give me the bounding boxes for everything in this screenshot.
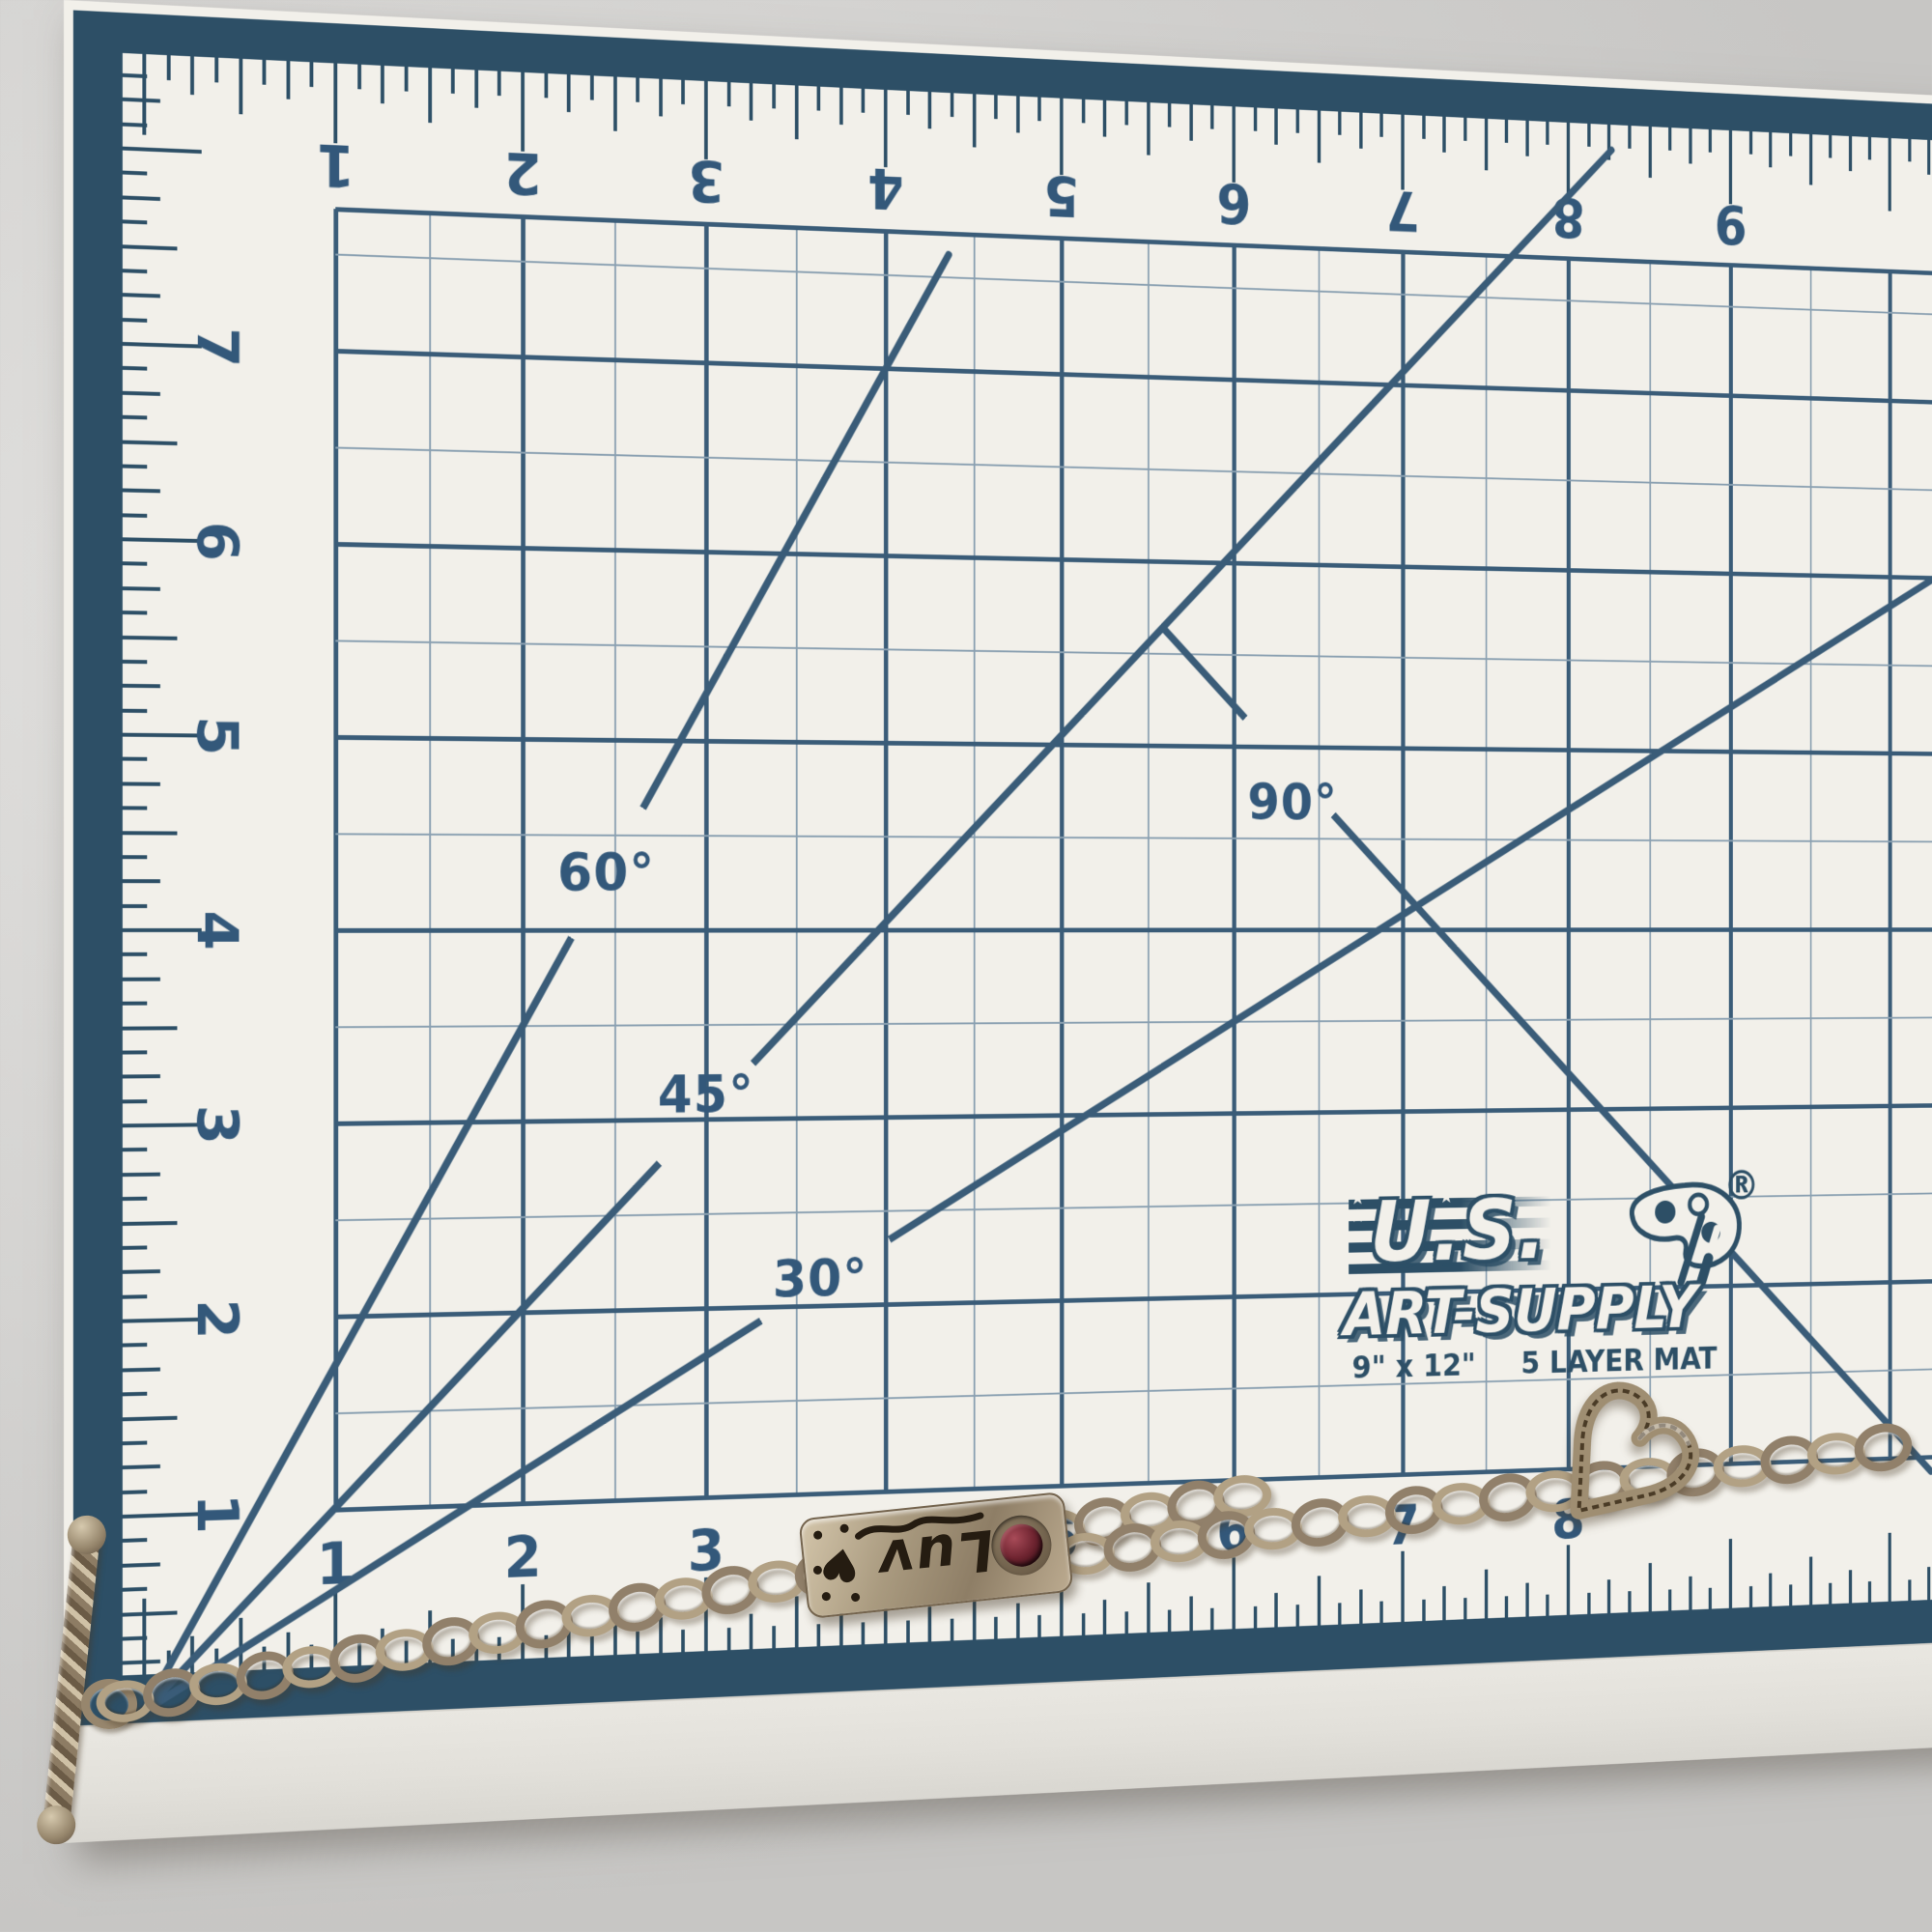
ruler-tick-top [214, 58, 218, 83]
ruler-number-left: 7 [188, 326, 244, 367]
ruler-tick-bottom [1147, 1582, 1150, 1633]
ruler-tick-left [123, 244, 178, 250]
ruler-tick-left [123, 147, 202, 154]
grid-hline [335, 541, 1932, 585]
ruler-tick-top [1254, 107, 1257, 130]
ruler-number-top: 9 [1714, 196, 1747, 250]
ruler-tick-top [286, 61, 290, 99]
ruler-tick-top [951, 93, 954, 117]
ruler-tick-left [123, 391, 160, 396]
ruler-tick-top [862, 89, 866, 113]
ruler-number-left: 5 [188, 716, 244, 756]
ruler-tick-bottom [659, 1617, 663, 1653]
ruler-tick-bottom [567, 1621, 571, 1657]
ruler-tick-top [1809, 134, 1812, 185]
ruler-tick-top [451, 69, 455, 94]
ruler-tick-left [123, 977, 160, 980]
ruler-tick-bottom [286, 1633, 290, 1669]
ruler-tick-bottom [1729, 1539, 1732, 1608]
ruler-tick-bottom [928, 1606, 932, 1641]
ruler-tick-bottom [1709, 1588, 1712, 1609]
ruler-tick-bottom [1668, 1589, 1671, 1610]
ruler-tick-top [636, 78, 639, 102]
ruler-tick-top [357, 65, 361, 90]
ruler-tick-top [1189, 104, 1192, 141]
mat-layer-label: 5 LAYER MAT [1520, 1341, 1717, 1381]
ruler-tick-bottom [682, 1630, 686, 1652]
ruler-tick-bottom [1607, 1579, 1610, 1613]
ruler-tick-top [1547, 122, 1549, 145]
ruler-number-bottom: 6 [1216, 1505, 1251, 1560]
ruler-number-top: 2 [504, 143, 542, 201]
ruler-tick-top [1587, 124, 1590, 147]
ruler-tick-top [659, 79, 663, 117]
ruler-tick-top [190, 56, 194, 95]
ruler-tick-left [123, 1464, 160, 1469]
ruler-tick-bottom [1849, 1570, 1852, 1603]
ruler-tick-left [123, 513, 147, 518]
ruler-tick-bottom [1401, 1551, 1404, 1622]
ruler-number-top: 4 [867, 159, 903, 216]
ruler-tick-bottom [862, 1622, 866, 1644]
ruler-tick-left [123, 1172, 160, 1177]
ruler-number-top: 7 [1385, 182, 1419, 237]
ruler-tick-top [1769, 132, 1772, 167]
ruler-number-bottom: 7 [1385, 1498, 1419, 1553]
ruler-tick-top [772, 84, 776, 108]
ruler-tick-top [567, 74, 571, 112]
ruler-number-left: 3 [188, 1104, 244, 1145]
ruler-tick-bottom [994, 1617, 998, 1639]
ruler-tick-top [428, 68, 432, 123]
ruler-tick-bottom [474, 1625, 478, 1661]
ruler-tick-left [123, 586, 160, 591]
ruler-tick-top [1338, 112, 1341, 135]
ruler-tick-left [123, 122, 147, 127]
ruler-tick-left [123, 219, 147, 224]
ruler-tick-left [123, 489, 160, 494]
ruler-tick-left [123, 195, 160, 201]
ruler-tick-bottom [1317, 1576, 1320, 1625]
ruler-tick-left [123, 831, 178, 835]
ruler-tick-bottom [1908, 1579, 1911, 1601]
ruler-tick-top [682, 80, 686, 104]
ruler-tick-left [123, 1148, 147, 1151]
ruler-number-bottom: 2 [504, 1529, 542, 1587]
ruler-tick-bottom [1037, 1615, 1041, 1637]
ruler-tick-left [123, 1660, 160, 1665]
ruler-tick-top [972, 94, 976, 147]
ruler-tick-left [123, 1099, 147, 1103]
ruler-tick-top [590, 75, 594, 99]
ruler-tick-top [166, 55, 170, 80]
ruler-tick-left [123, 1343, 147, 1348]
ruler-tick-bottom [405, 1641, 409, 1664]
logo-brand-artsupply: ART-SUPPLY [1344, 1273, 1697, 1350]
ruler-tick-top [750, 83, 753, 121]
ruler-tick-top [1168, 103, 1171, 128]
ruler-tick-bottom [613, 1604, 617, 1655]
ruler-tick-bottom [1809, 1557, 1812, 1605]
ruler-tick-bottom [1484, 1570, 1487, 1619]
ruler-tick-left [123, 73, 147, 78]
ruler-tick-bottom [884, 1571, 888, 1644]
ruler-tick-bottom [1103, 1600, 1106, 1634]
ruler-number-bottom: 3 [688, 1522, 724, 1579]
ruler-tick-bottom [1210, 1608, 1213, 1631]
grid-hline [335, 1445, 1932, 1512]
ruler-tick-bottom [310, 1644, 314, 1667]
ruler-number-bottom: 4 [867, 1517, 903, 1574]
ruler-tick-bottom [1749, 1586, 1752, 1607]
ruler-tick-bottom [497, 1637, 501, 1661]
ruler-tick-bottom [1232, 1557, 1235, 1629]
ruler-tick-left [123, 1367, 160, 1372]
ruler-tick-top [839, 88, 843, 125]
ruler-tick-bottom [1567, 1545, 1570, 1615]
ruler-tick-bottom [1547, 1595, 1549, 1616]
ruler-tick-bottom [1525, 1583, 1528, 1617]
ruler-tick-left [123, 366, 147, 371]
ruler-tick-top [1908, 139, 1911, 161]
ruler-tick-bottom [1769, 1574, 1772, 1607]
ruler-tick-top [1422, 116, 1425, 139]
ruler-tick-bottom [428, 1610, 432, 1662]
ruler-tick-bottom [772, 1626, 776, 1648]
ruler-tick-top [906, 91, 910, 115]
ruler-number-top: 1 [316, 135, 355, 194]
ruler-tick-bottom [1648, 1563, 1651, 1611]
ruler-tick-top [1484, 119, 1487, 171]
ruler-tick-left [123, 708, 147, 712]
ruler-number-left: 1 [188, 1492, 244, 1534]
angle-label-45: 45° [658, 1068, 754, 1122]
ruler-tick-left [123, 1490, 147, 1494]
grid-top-line [335, 207, 1932, 286]
ruler-tick-top [1124, 101, 1127, 126]
ruler-tick-top [1103, 100, 1106, 137]
ruler-tick-bottom [1124, 1611, 1127, 1634]
ruler-number-left: 6 [188, 521, 244, 562]
ruler-tick-bottom [750, 1614, 753, 1650]
ruler-number-left: 4 [188, 910, 244, 950]
ruler-tick-top [1889, 138, 1891, 212]
ruler-tick-top [1689, 128, 1691, 164]
ruler-tick-bottom [1060, 1564, 1064, 1636]
ruler-tick-bottom [1168, 1609, 1171, 1632]
ruler-tick-left [123, 807, 147, 810]
ruler-tick-bottom [263, 1646, 267, 1669]
ruler-tick-left [123, 1050, 147, 1054]
ruler-tick-left [123, 1587, 147, 1592]
ruler-tick-bottom [906, 1620, 910, 1642]
ruler-tick-top [310, 62, 314, 87]
ruler-tick-bottom [704, 1577, 708, 1651]
ruler-tick-top [381, 66, 384, 103]
ruler-tick-top [928, 92, 932, 128]
ruler-tick-top [994, 95, 998, 119]
us-art-supply-logo: ★ ★ ★ ★ ★ U.S. ® ART-SUPPLY 9" x 12" 5 L… [1344, 1178, 1748, 1381]
ruler-tick-bottom [1628, 1591, 1631, 1612]
ruler-number-left: 2 [188, 1298, 244, 1340]
ruler-tick-left [123, 171, 147, 176]
ruler-tick-top [1443, 117, 1446, 153]
ruler-tick-bottom [726, 1628, 730, 1650]
ruler-tick-bottom [972, 1589, 976, 1639]
ray-30deg [142, 400, 1932, 1715]
ruler-tick-top [497, 71, 501, 97]
ruler-tick-top [1749, 131, 1752, 155]
ruler-tick-left [123, 293, 160, 298]
ruler-tick-left [123, 635, 178, 639]
ruler-tick-left [123, 879, 160, 883]
ruler-tick-bottom [590, 1634, 594, 1656]
mat-border-left [73, 10, 123, 1725]
ruler-tick-left [123, 415, 147, 420]
ruler-tick-top [544, 73, 548, 98]
ruler-tick-left [123, 1026, 178, 1030]
ruler-tick-top [1927, 140, 1930, 175]
ruler-tick-bottom [1868, 1581, 1871, 1603]
ruler-tick-bottom [1254, 1606, 1257, 1629]
ruler-tick-left [123, 98, 160, 103]
ruler-tick-top [794, 85, 798, 139]
ruler-tick-bottom [1016, 1604, 1020, 1638]
ruler-tick-bottom [1927, 1567, 1930, 1600]
ruler-number-top: 3 [688, 151, 724, 208]
ruler-number-top: 5 [1043, 167, 1079, 223]
ruler-tick-bottom [521, 1584, 525, 1659]
angle-label-30: 30° [773, 1252, 867, 1306]
ruler-tick-left [123, 562, 147, 566]
ruler-tick-left [123, 1074, 160, 1078]
ruler-tick-top [1037, 98, 1041, 122]
ruler-tick-left [123, 1562, 160, 1567]
grid-hline [335, 734, 1932, 758]
ruler-tick-bottom [817, 1624, 821, 1646]
ruler-tick-left [123, 1197, 147, 1201]
ruler-tick-bottom [357, 1643, 361, 1666]
ruler-tick-top [613, 76, 617, 130]
ruler-tick-left [123, 904, 147, 908]
ruler-tick-bottom [1829, 1583, 1832, 1605]
ruler-tick-top [1648, 127, 1651, 178]
ruler-tick-bottom [333, 1591, 337, 1666]
ruler-tick-left [123, 952, 147, 956]
ruler-tick-left [123, 269, 147, 273]
ruler-tick-bottom [636, 1632, 639, 1654]
angle-label-60: 60° [557, 846, 655, 899]
ruler-tick-top [1359, 113, 1362, 149]
ruler-tick-top [1829, 135, 1832, 158]
ruler-tick-bottom [951, 1619, 954, 1641]
ruler-tick-top [1709, 129, 1712, 153]
ruler-tick-left [123, 318, 147, 323]
ruler-tick-bottom [1443, 1586, 1446, 1620]
ruler-tick-top [1147, 102, 1150, 156]
mat-size-label: 9" x 12" [1352, 1348, 1476, 1386]
ruler-tick-left [123, 757, 147, 761]
ruler-tick-top [263, 60, 267, 85]
ruler-tick-bottom [1189, 1596, 1192, 1631]
ruler-tick-top [1016, 96, 1020, 132]
ruler-tick-top [1668, 128, 1671, 151]
registered-mark: ® [1723, 1161, 1759, 1209]
ruler-tick-bottom [1359, 1589, 1362, 1623]
ruler-tick-left [123, 611, 147, 614]
ruler-tick-bottom [1380, 1602, 1383, 1623]
ruler-tick-top [1317, 110, 1320, 162]
ruler-tick-top [474, 70, 478, 107]
ruler-tick-left [123, 1538, 147, 1543]
ruler-tick-left [123, 684, 160, 688]
ruler-tick-top [1505, 120, 1508, 143]
ruler-tick-left [123, 1002, 147, 1006]
ruler-tick-top [1628, 126, 1631, 149]
cutting-mat: 123456789123456787654321 30° 45° 60° 90°… [64, 0, 1932, 1841]
ruler-tick-top [1082, 99, 1086, 124]
ruler-tick-top [1275, 108, 1278, 144]
ruler-tick-bottom [1689, 1577, 1691, 1610]
ruler-tick-left [123, 1440, 147, 1445]
ruler-tick-top [1525, 121, 1528, 156]
ruler-tick-bottom [1295, 1605, 1298, 1627]
ruler-tick-left [123, 464, 147, 469]
ruler-tick-left [123, 1221, 178, 1226]
grid-hline-half [335, 1014, 1932, 1027]
grid-hline-half [335, 446, 1932, 497]
ruler-tick-bottom [1587, 1593, 1590, 1614]
ruler-tick-top [405, 67, 409, 92]
ruler-tick-bottom [544, 1635, 548, 1659]
ruler-tick-left [123, 440, 178, 444]
ruler-tick-top [1849, 136, 1852, 171]
ruler-tick-bottom [839, 1610, 843, 1646]
ruler-tick-top [1380, 114, 1383, 137]
logo-brand-us: U.S. [1370, 1182, 1548, 1281]
angle-label-90: 90° [1247, 777, 1337, 828]
ruler-tick-top [1463, 118, 1466, 141]
ruler-tick-bottom [1422, 1600, 1425, 1621]
ruler-tick-left [123, 1294, 147, 1299]
ruler-tick-top [239, 59, 242, 115]
ruler-tick-top [1789, 133, 1792, 156]
ruler-tick-bottom [381, 1629, 384, 1664]
ruler-tick-top [726, 82, 730, 106]
ruler-tick-bottom [1338, 1603, 1341, 1624]
ruler-tick-bottom [1889, 1533, 1891, 1602]
ruler-tick-left [123, 1269, 160, 1274]
ruler-number-bottom: 8 [1551, 1493, 1585, 1548]
ruler-tick-top [1868, 137, 1871, 160]
grid-hline [335, 1100, 1932, 1126]
ruler-tick-left [123, 781, 160, 785]
ruler-tick-bottom [1505, 1596, 1508, 1617]
ruler-tick-left [123, 1415, 178, 1421]
ruler-tick-bottom [451, 1639, 455, 1662]
ruler-tick-top [1295, 109, 1298, 132]
ruler-tick-left [123, 855, 147, 859]
ruler-tick-bottom [794, 1596, 798, 1647]
ruler-tick-bottom [1789, 1584, 1792, 1605]
ruler-number-top: 6 [1216, 175, 1251, 231]
ruler-tick-left [123, 1392, 147, 1397]
ruler-tick-bottom [1463, 1598, 1466, 1619]
ruler-tick-top [817, 87, 821, 111]
ruler-tick-top [1210, 105, 1213, 129]
ruler-tick-left [123, 1245, 147, 1249]
grid-hline [335, 349, 1932, 413]
ruler-number-bottom: 5 [1043, 1511, 1079, 1567]
ruler-tick-bottom [1082, 1613, 1086, 1635]
ruler-tick-left [123, 660, 147, 664]
ruler-tick-bottom [1275, 1593, 1278, 1628]
ruler-tick-left [123, 1610, 178, 1616]
